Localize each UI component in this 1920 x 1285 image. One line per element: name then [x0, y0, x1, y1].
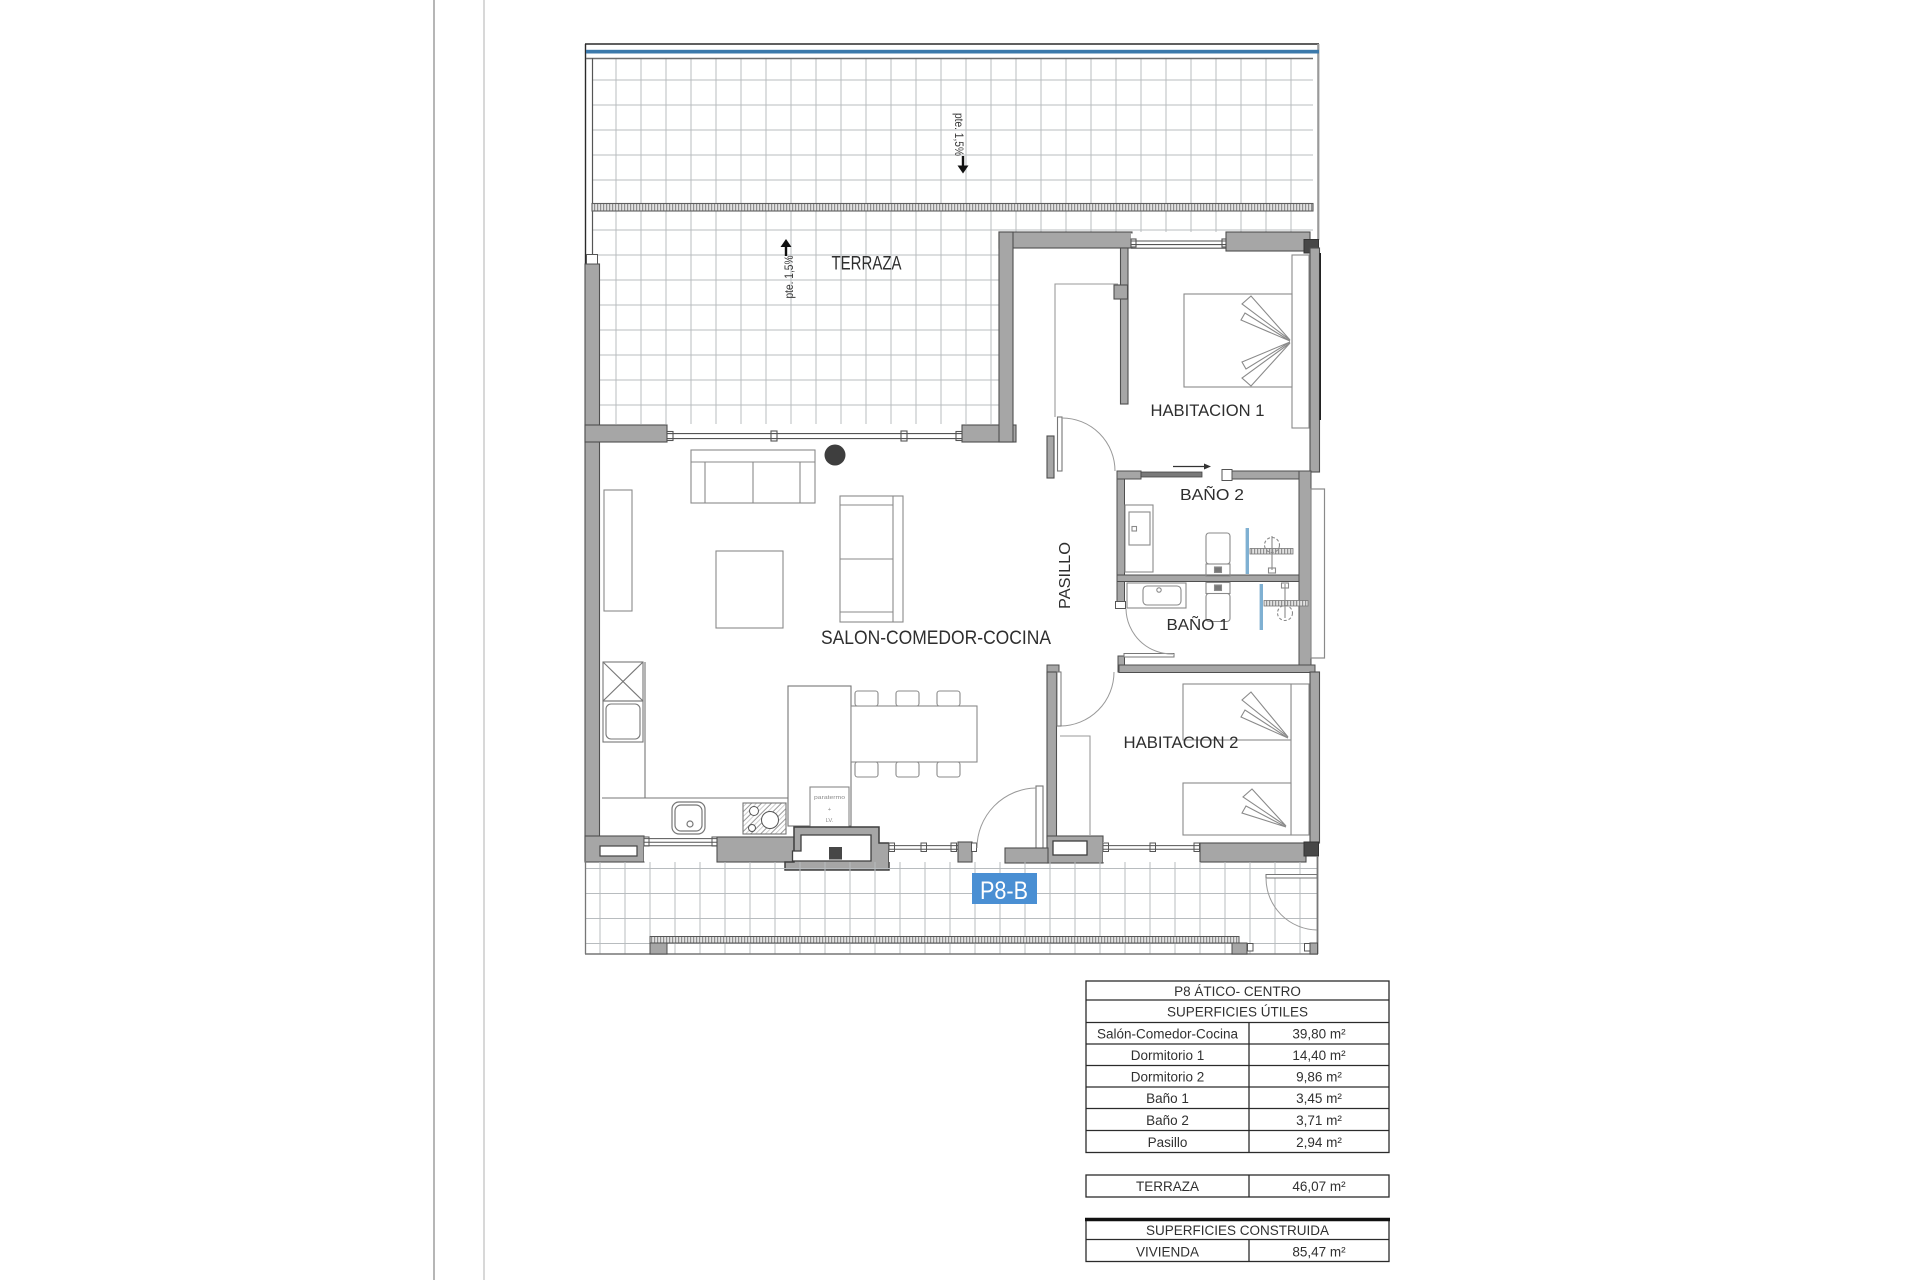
svg-text:Dormitorio 1: Dormitorio 1: [1131, 1048, 1205, 1063]
svg-text:P8-B: P8-B: [980, 877, 1028, 905]
svg-text:Pasillo: Pasillo: [1148, 1135, 1188, 1150]
svg-text:Baño 1: Baño 1: [1146, 1091, 1189, 1106]
svg-text:Baño 2: Baño 2: [1146, 1113, 1189, 1128]
svg-text:HABITACION 2: HABITACION 2: [1124, 733, 1239, 752]
svg-text:Salón-Comedor-Cocina: Salón-Comedor-Cocina: [1097, 1027, 1239, 1042]
svg-text:39,80 m²: 39,80 m²: [1292, 1027, 1346, 1042]
svg-text:46,07 m²: 46,07 m²: [1292, 1179, 1346, 1194]
svg-text:TERRAZA: TERRAZA: [832, 254, 902, 275]
svg-text:pte. 1,5%: pte. 1,5%: [784, 256, 796, 299]
svg-text:3,71 m²: 3,71 m²: [1296, 1113, 1342, 1128]
svg-text:85,47 m²: 85,47 m²: [1292, 1245, 1346, 1260]
svg-text:SALON-COMEDOR-COCINA: SALON-COMEDOR-COCINA: [821, 628, 1051, 649]
svg-text:paratermo: paratermo: [814, 795, 845, 801]
svg-text:HABITACION 1: HABITACION 1: [1151, 401, 1265, 420]
svg-text:2,94 m²: 2,94 m²: [1296, 1135, 1342, 1150]
svg-text:BAÑO 1: BAÑO 1: [1167, 617, 1229, 634]
svg-text:SUPERFICIES CONSTRUIDA: SUPERFICIES CONSTRUIDA: [1146, 1223, 1329, 1238]
svg-text:LV.: LV.: [826, 818, 834, 824]
svg-text:9,86 m²: 9,86 m²: [1296, 1070, 1342, 1085]
svg-text:pte. 1,5%: pte. 1,5%: [952, 113, 964, 156]
svg-text:VIVIENDA: VIVIENDA: [1136, 1245, 1199, 1260]
svg-text:P8 ÁTICO- CENTRO: P8 ÁTICO- CENTRO: [1174, 984, 1301, 999]
svg-text:14,40 m²: 14,40 m²: [1292, 1048, 1346, 1063]
svg-text:PASILLO: PASILLO: [1057, 542, 1074, 609]
svg-text:SUPERFICIES ÚTILES: SUPERFICIES ÚTILES: [1167, 1005, 1308, 1020]
svg-text:BAÑO 2: BAÑO 2: [1180, 487, 1244, 504]
svg-text:TERRAZA: TERRAZA: [1136, 1179, 1199, 1194]
svg-text:3,45 m²: 3,45 m²: [1296, 1091, 1342, 1106]
svg-text:Dormitorio 2: Dormitorio 2: [1131, 1070, 1205, 1085]
